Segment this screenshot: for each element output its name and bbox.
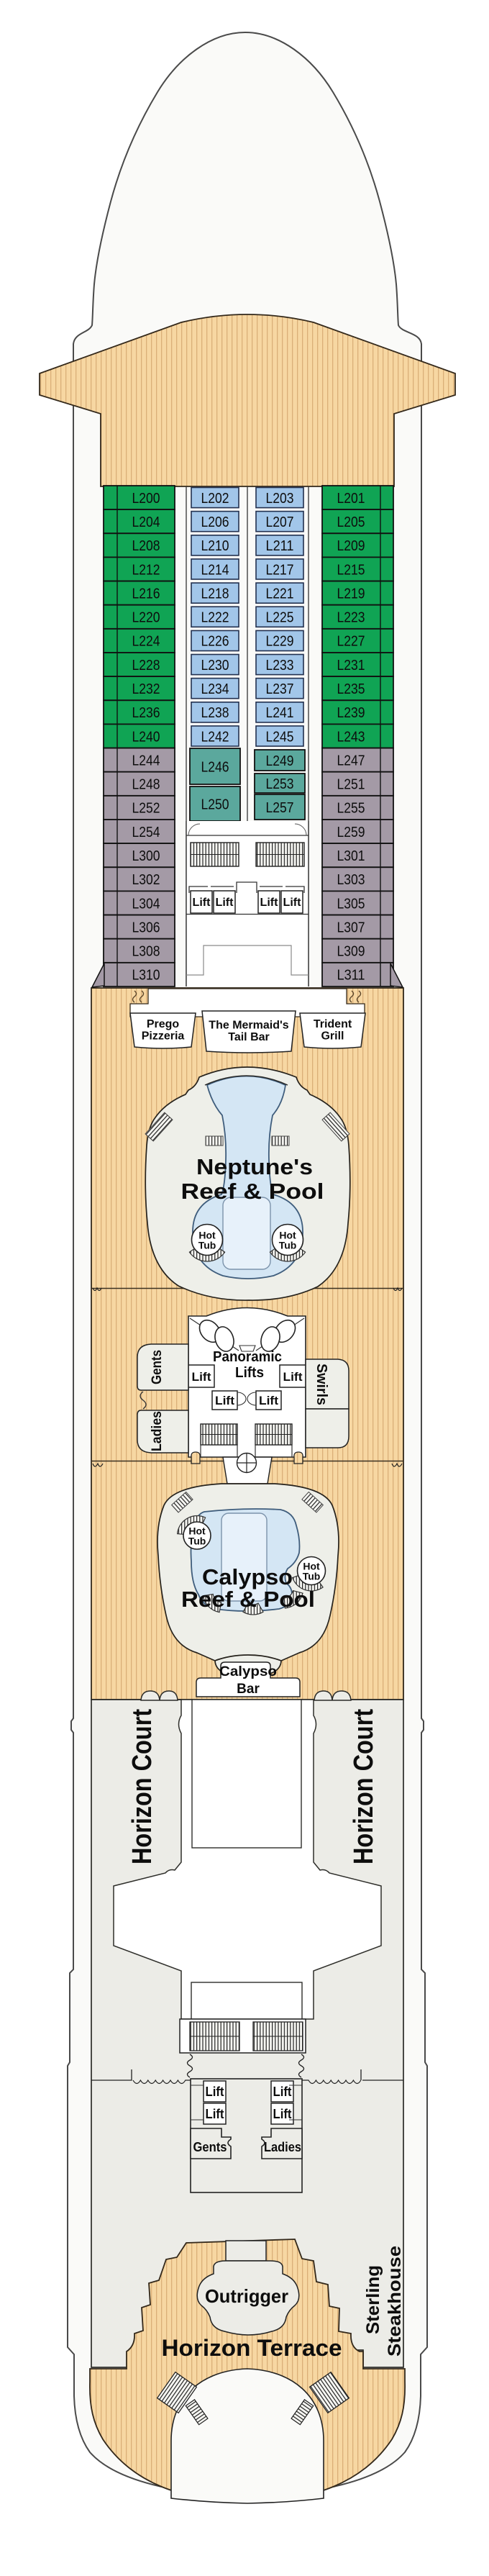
svg-text:L245: L245 bbox=[266, 728, 294, 745]
svg-text:Panoramic: Panoramic bbox=[213, 1349, 282, 1365]
svg-text:L304: L304 bbox=[132, 895, 160, 912]
svg-text:L229: L229 bbox=[266, 633, 294, 650]
svg-text:Bar: Bar bbox=[237, 1682, 260, 1697]
svg-text:L234: L234 bbox=[201, 681, 229, 697]
svg-text:L209: L209 bbox=[337, 538, 365, 554]
svg-text:L307: L307 bbox=[337, 919, 365, 935]
svg-text:Tail Bar: Tail Bar bbox=[228, 1031, 270, 1043]
svg-text:L235: L235 bbox=[337, 681, 365, 697]
svg-text:Grill: Grill bbox=[321, 1030, 344, 1043]
svg-text:Horizon Court: Horizon Court bbox=[349, 1709, 379, 1864]
svg-text:Lift: Lift bbox=[215, 1394, 234, 1407]
svg-text:L206: L206 bbox=[201, 514, 229, 530]
svg-text:L215: L215 bbox=[337, 561, 365, 578]
svg-text:L305: L305 bbox=[337, 895, 365, 912]
svg-text:L214: L214 bbox=[201, 561, 229, 578]
svg-text:L203: L203 bbox=[266, 490, 294, 507]
svg-text:Pizzeria: Pizzeria bbox=[142, 1030, 185, 1043]
svg-text:L306: L306 bbox=[132, 919, 160, 935]
svg-text:L237: L237 bbox=[266, 681, 294, 697]
svg-text:L218: L218 bbox=[201, 585, 229, 602]
svg-text:L301: L301 bbox=[337, 848, 365, 864]
svg-text:L309: L309 bbox=[337, 943, 365, 960]
svg-text:Lift: Lift bbox=[283, 897, 302, 909]
svg-text:L217: L217 bbox=[266, 561, 294, 578]
svg-text:L222: L222 bbox=[201, 609, 229, 626]
svg-text:L211: L211 bbox=[266, 538, 294, 554]
svg-text:L208: L208 bbox=[132, 538, 160, 554]
svg-text:L242: L242 bbox=[201, 728, 229, 745]
svg-text:L221: L221 bbox=[266, 585, 294, 602]
svg-text:L246: L246 bbox=[201, 758, 229, 775]
svg-text:L207: L207 bbox=[266, 514, 294, 530]
svg-text:Ladies: Ladies bbox=[150, 1411, 165, 1451]
svg-text:L253: L253 bbox=[266, 776, 294, 792]
svg-text:L239: L239 bbox=[337, 704, 365, 721]
svg-text:Lift: Lift bbox=[206, 2085, 224, 2099]
svg-text:Tub: Tub bbox=[303, 1571, 321, 1582]
svg-text:L212: L212 bbox=[132, 561, 160, 578]
svg-text:Reef & Pool: Reef & Pool bbox=[181, 1587, 315, 1612]
svg-text:L202: L202 bbox=[201, 490, 229, 507]
svg-text:Horizon Court: Horizon Court bbox=[127, 1709, 157, 1864]
svg-text:L230: L230 bbox=[201, 657, 229, 674]
svg-text:Gents: Gents bbox=[193, 2140, 227, 2154]
svg-text:L302: L302 bbox=[132, 871, 160, 888]
svg-text:L257: L257 bbox=[266, 799, 294, 816]
svg-text:L224: L224 bbox=[132, 633, 160, 650]
svg-text:L233: L233 bbox=[266, 657, 294, 674]
svg-text:L205: L205 bbox=[337, 514, 365, 530]
svg-text:L252: L252 bbox=[132, 800, 160, 817]
svg-text:The Mermaid's: The Mermaid's bbox=[209, 1020, 288, 1032]
svg-text:L244: L244 bbox=[132, 752, 160, 768]
svg-text:L308: L308 bbox=[132, 943, 160, 960]
svg-text:Reef & Pool: Reef & Pool bbox=[181, 1179, 324, 1204]
svg-text:L238: L238 bbox=[201, 704, 229, 721]
svg-text:L223: L223 bbox=[337, 609, 365, 626]
svg-text:L251: L251 bbox=[337, 776, 365, 793]
svg-text:L311: L311 bbox=[337, 967, 365, 984]
svg-text:Lift: Lift bbox=[193, 897, 211, 909]
svg-text:Lift: Lift bbox=[206, 2107, 224, 2121]
svg-text:Lifts: Lifts bbox=[235, 1365, 264, 1381]
svg-text:Lift: Lift bbox=[273, 2107, 292, 2121]
svg-text:L201: L201 bbox=[337, 490, 365, 507]
svg-text:L250: L250 bbox=[201, 796, 229, 812]
svg-text:L228: L228 bbox=[132, 657, 160, 674]
svg-text:L241: L241 bbox=[266, 704, 294, 721]
svg-text:Gents: Gents bbox=[150, 1350, 165, 1384]
svg-text:L236: L236 bbox=[132, 704, 160, 721]
svg-text:L226: L226 bbox=[201, 633, 229, 650]
svg-text:Trident: Trident bbox=[314, 1018, 352, 1030]
svg-text:Lift: Lift bbox=[216, 897, 234, 909]
svg-text:L310: L310 bbox=[132, 967, 160, 984]
svg-text:Sterling: Sterling bbox=[363, 2265, 383, 2334]
svg-text:Steakhouse: Steakhouse bbox=[385, 2246, 405, 2357]
svg-text:Lift: Lift bbox=[260, 897, 279, 909]
svg-text:L220: L220 bbox=[132, 609, 160, 626]
svg-text:L255: L255 bbox=[337, 800, 365, 817]
svg-text:Neptune's: Neptune's bbox=[196, 1154, 313, 1179]
svg-text:L247: L247 bbox=[337, 752, 365, 768]
svg-text:Outrigger: Outrigger bbox=[205, 2285, 288, 2307]
svg-text:L204: L204 bbox=[132, 514, 160, 530]
svg-text:Lift: Lift bbox=[273, 2085, 292, 2099]
svg-text:L231: L231 bbox=[337, 657, 365, 674]
svg-text:L227: L227 bbox=[337, 633, 365, 650]
svg-text:Tub: Tub bbox=[279, 1240, 297, 1251]
svg-text:Tub: Tub bbox=[188, 1536, 206, 1547]
svg-text:L216: L216 bbox=[132, 585, 160, 602]
svg-text:Horizon Terrace: Horizon Terrace bbox=[162, 2335, 342, 2361]
svg-text:L232: L232 bbox=[132, 681, 160, 697]
svg-text:Prego: Prego bbox=[147, 1018, 180, 1030]
svg-text:L248: L248 bbox=[132, 776, 160, 793]
svg-text:Ladies: Ladies bbox=[264, 2140, 301, 2154]
svg-text:L243: L243 bbox=[337, 728, 365, 745]
svg-text:Lift: Lift bbox=[192, 1370, 211, 1384]
svg-text:L303: L303 bbox=[337, 871, 365, 888]
svg-text:L219: L219 bbox=[337, 585, 365, 602]
svg-text:L210: L210 bbox=[201, 538, 229, 554]
svg-text:L249: L249 bbox=[266, 753, 294, 769]
svg-text:L300: L300 bbox=[132, 848, 160, 864]
svg-text:L254: L254 bbox=[132, 824, 160, 840]
svg-text:Lift: Lift bbox=[283, 1370, 303, 1384]
svg-text:Lift: Lift bbox=[259, 1394, 278, 1407]
svg-text:L200: L200 bbox=[132, 490, 160, 507]
svg-text:L240: L240 bbox=[132, 728, 160, 745]
svg-text:L259: L259 bbox=[337, 824, 365, 840]
svg-text:Calypso: Calypso bbox=[219, 1664, 277, 1679]
svg-text:L225: L225 bbox=[266, 609, 294, 626]
svg-text:Swirls: Swirls bbox=[314, 1364, 329, 1405]
svg-text:Tub: Tub bbox=[198, 1240, 216, 1251]
svg-text:Calypso: Calypso bbox=[202, 1564, 293, 1589]
